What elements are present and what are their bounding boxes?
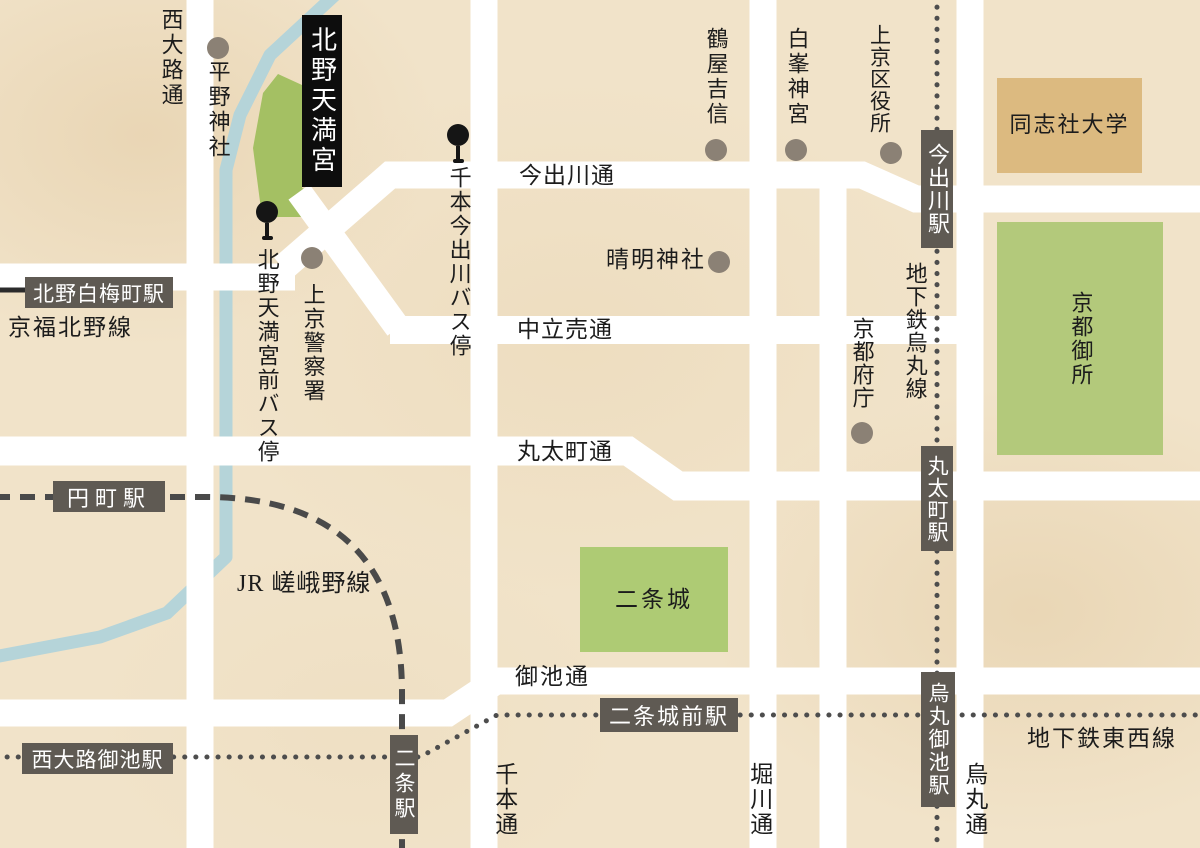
station-emmachi: 円町駅 (53, 481, 165, 512)
station-karasuma-oike: 烏丸御池駅 (921, 672, 955, 807)
station-nijojo-mae: 二条城前駅 (600, 698, 738, 732)
kyoto-gosho-label: 京都御所 (1068, 291, 1093, 387)
senbon-dori-label: 千本通 (491, 762, 517, 837)
subway-karasuma-line-label: 地下鉄烏丸線 (902, 262, 927, 400)
shiramine-jingu-label: 白峯神宮 (784, 27, 809, 127)
shiramine-jingu-dot (785, 139, 807, 161)
station-emmachi-label: 円町駅 (67, 481, 151, 513)
station-nijojo-mae-label: 二条城前駅 (609, 699, 729, 731)
area-kyoto-gosho: 京都御所 (997, 222, 1163, 455)
imadegawa-dori-label: 今出川通 (519, 163, 615, 189)
hirano-jinja-label: 平野神社 (205, 60, 230, 160)
kitano-tenmangu-title: 北野天満宮 (304, 26, 341, 176)
bus-stop-sign-base (453, 159, 464, 163)
station-kitano-hakubaicho-label: 北野白梅町駅 (33, 278, 165, 308)
senbon-imadegawa-busstop-label: 千本今出川バス停 (446, 166, 471, 358)
station-kitano-hakubaicho: 北野白梅町駅 (25, 277, 173, 308)
jr-sagano-line-label: JR 嵯峨野線 (237, 571, 371, 598)
hirano-jinja-dot (207, 37, 229, 59)
area-doshisha-university: 同志社大学 (997, 78, 1142, 173)
area-nijo-castle: 二条城 (580, 547, 728, 652)
bus-stop-sign-head (256, 201, 278, 223)
kamigyo-police-dot (301, 247, 323, 269)
kyoto-pref-office-label: 京都府庁 (849, 317, 874, 409)
station-nijo-label: 二条駅 (389, 747, 419, 822)
station-marutamachi-label: 丸太町駅 (922, 455, 952, 543)
kamigyo-ward-office-dot (880, 142, 902, 164)
nakadachiuri-dori-label: 中立売通 (517, 317, 613, 343)
karasuma-dori-label: 烏丸通 (961, 762, 987, 837)
station-marutamachi: 丸太町駅 (921, 446, 953, 551)
tsuruya-yoshinobu-label: 鶴屋吉信 (703, 27, 728, 127)
bus-stop-sign-pole (265, 223, 269, 236)
station-imadegawa: 今出川駅 (921, 130, 953, 248)
horikawa-dori-label: 堀川通 (746, 762, 772, 837)
subway-tozai-line-label: 地下鉄東西線 (1027, 726, 1177, 752)
kyoto-pref-office-dot (851, 422, 873, 444)
kamigyo-ward-office-label: 上京区役所 (867, 24, 891, 134)
bus-stop-sign-head (447, 124, 469, 146)
doshisha-university-label: 同志社大学 (1009, 113, 1129, 138)
kitano-tenmangu-title-box: 北野天満宮 (302, 15, 342, 187)
nijo-castle-label: 二条城 (615, 587, 693, 613)
station-karasuma-oike-label: 烏丸御池駅 (923, 682, 953, 797)
seimei-jinja-dot (708, 251, 730, 273)
tsuruya-yoshinobu-dot (705, 139, 727, 161)
station-nijo: 二条駅 (390, 735, 418, 834)
station-nishioji-oike: 西大路御池駅 (22, 743, 173, 774)
marutamachi-dori-label: 丸太町通 (517, 439, 613, 465)
keifuku-kitano-line-label: 京福北野線 (8, 315, 133, 341)
station-imadegawa-label: 今出川駅 (921, 143, 953, 235)
oike-dori-label: 御池通 (515, 664, 590, 690)
kyoto-area-map: 同志社大学 京都御所 二条城 北野天満宮 西大路通 平野神社 千本今出川バス停 … (0, 0, 1200, 848)
seimei-jinja-label: 晴明神社 (606, 247, 706, 273)
bus-stop-sign-base (262, 236, 273, 240)
nishioji-dori-label: 西大路通 (158, 8, 183, 108)
kitano-tenmangu-mae-busstop-label: 北野天満宮前バス停 (254, 248, 279, 464)
bus-stop-icon (256, 201, 278, 240)
station-nishioji-oike-label: 西大路御池駅 (32, 744, 164, 774)
kamigyo-police-label: 上京警察署 (300, 283, 325, 403)
bus-stop-sign-pole (456, 146, 460, 159)
bus-stop-icon (447, 124, 469, 163)
